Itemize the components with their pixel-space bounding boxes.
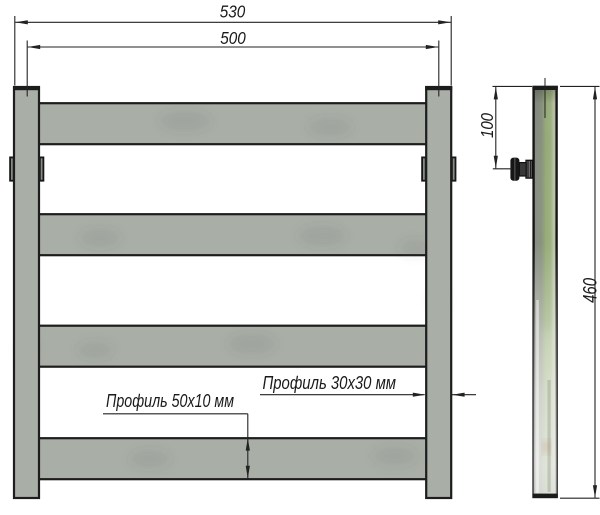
svg-text:100: 100 <box>477 113 497 138</box>
svg-text:530: 530 <box>220 2 246 22</box>
svg-text:500: 500 <box>220 28 246 48</box>
svg-text:460: 460 <box>579 278 600 303</box>
svg-text:Профиль 50х10 мм: Профиль 50х10 мм <box>106 390 234 411</box>
svg-text:Профиль 30х30 мм: Профиль 30х30 мм <box>263 372 397 393</box>
